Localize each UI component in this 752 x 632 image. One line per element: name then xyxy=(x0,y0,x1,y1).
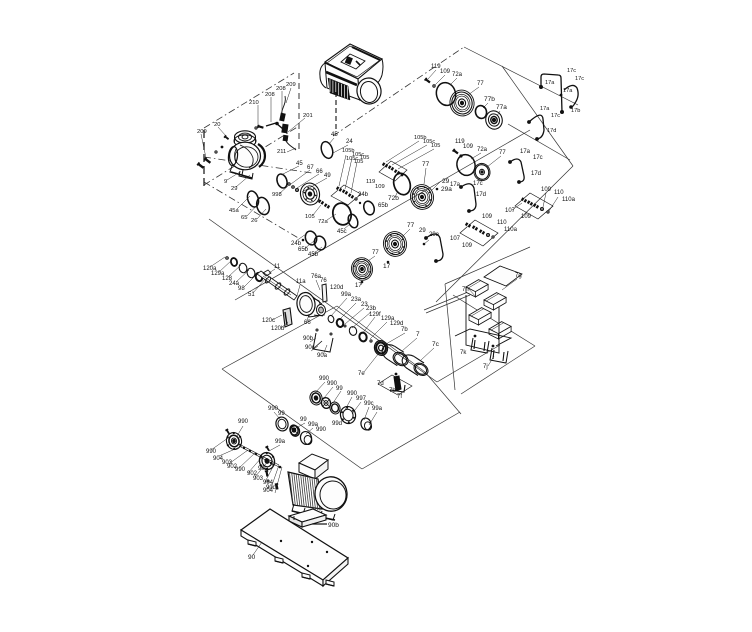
svg-text:9: 9 xyxy=(224,179,227,185)
svg-text:77: 77 xyxy=(422,161,430,168)
svg-text:107: 107 xyxy=(505,208,516,214)
svg-text:17c: 17c xyxy=(575,76,584,82)
svg-text:208: 208 xyxy=(276,86,286,92)
svg-text:107: 107 xyxy=(450,236,461,242)
svg-text:109: 109 xyxy=(462,243,473,249)
svg-text:17d: 17d xyxy=(476,192,486,198)
svg-text:17a: 17a xyxy=(450,182,461,188)
svg-text:51: 51 xyxy=(248,292,255,298)
svg-text:7g: 7g xyxy=(515,273,522,279)
svg-text:72b: 72b xyxy=(388,195,399,202)
svg-text:17a: 17a xyxy=(545,80,555,86)
svg-text:7c: 7c xyxy=(432,341,440,348)
svg-text:45: 45 xyxy=(331,132,338,138)
svg-text:76: 76 xyxy=(320,278,327,284)
svg-text:49: 49 xyxy=(324,173,331,179)
svg-text:77b: 77b xyxy=(484,96,495,103)
svg-text:99: 99 xyxy=(300,417,307,423)
svg-text:17: 17 xyxy=(383,263,391,270)
svg-text:17d: 17d xyxy=(531,171,541,177)
svg-text:17c: 17c xyxy=(551,113,560,119)
svg-text:45a: 45a xyxy=(229,208,239,214)
svg-text:109: 109 xyxy=(440,69,451,75)
svg-text:66: 66 xyxy=(304,320,311,326)
svg-text:99a: 99a xyxy=(275,439,286,445)
svg-text:109: 109 xyxy=(541,187,552,193)
svg-text:66: 66 xyxy=(316,169,323,175)
svg-text:7: 7 xyxy=(416,331,420,338)
svg-text:90b: 90b xyxy=(303,336,314,342)
svg-text:99: 99 xyxy=(336,386,343,392)
svg-text:990: 990 xyxy=(238,419,249,425)
svg-text:99: 99 xyxy=(278,411,285,417)
svg-text:24: 24 xyxy=(346,139,353,145)
svg-text:90c: 90c xyxy=(305,345,315,351)
svg-text:17c: 17c xyxy=(533,155,543,161)
svg-text:72a: 72a xyxy=(477,147,488,153)
svg-text:99d: 99d xyxy=(332,421,342,427)
svg-text:110a: 110a xyxy=(504,227,518,233)
svg-text:7h: 7h xyxy=(462,287,469,293)
svg-text:120c: 120c xyxy=(262,318,275,324)
svg-text:72a: 72a xyxy=(452,72,463,78)
svg-text:45b: 45b xyxy=(308,252,319,258)
svg-text:7j: 7j xyxy=(483,364,488,370)
svg-text:17d: 17d xyxy=(547,128,556,134)
svg-text:109: 109 xyxy=(521,214,532,220)
svg-text:65: 65 xyxy=(241,215,247,221)
svg-text:109: 109 xyxy=(375,184,385,190)
svg-text:119: 119 xyxy=(366,179,375,185)
svg-text:90b: 90b xyxy=(328,522,339,529)
svg-text:77: 77 xyxy=(477,81,484,87)
svg-text:120b: 120b xyxy=(271,326,285,332)
svg-text:17c: 17c xyxy=(567,68,576,74)
svg-text:211: 211 xyxy=(277,149,286,155)
svg-text:110: 110 xyxy=(554,190,564,196)
svg-text:17b: 17b xyxy=(571,108,580,114)
svg-text:90a: 90a xyxy=(317,353,328,359)
svg-text:90a: 90a xyxy=(258,466,269,472)
svg-text:45: 45 xyxy=(296,161,303,167)
svg-text:105: 105 xyxy=(354,159,363,165)
svg-text:105: 105 xyxy=(431,143,440,149)
svg-text:26: 26 xyxy=(251,218,257,224)
svg-text:109: 109 xyxy=(482,214,493,220)
svg-text:209: 209 xyxy=(197,129,207,135)
svg-text:45c: 45c xyxy=(337,229,347,235)
svg-text:201: 201 xyxy=(303,113,313,119)
svg-text:17a: 17a xyxy=(540,106,550,112)
svg-text:77: 77 xyxy=(372,250,379,256)
svg-text:110: 110 xyxy=(497,220,507,226)
svg-text:109: 109 xyxy=(463,144,474,150)
svg-text:990: 990 xyxy=(316,427,327,433)
svg-text:67: 67 xyxy=(307,165,314,171)
svg-text:17a: 17a xyxy=(520,149,531,155)
svg-text:29: 29 xyxy=(442,178,450,185)
svg-text:209: 209 xyxy=(286,82,296,88)
svg-text:110a: 110a xyxy=(562,197,576,203)
svg-text:7b: 7b xyxy=(401,327,408,333)
svg-text:77: 77 xyxy=(407,222,415,229)
svg-text:77a: 77a xyxy=(496,104,507,111)
svg-text:208: 208 xyxy=(265,92,275,98)
svg-text:7k: 7k xyxy=(460,350,467,356)
svg-text:29: 29 xyxy=(419,228,426,234)
svg-text:990: 990 xyxy=(235,467,246,473)
svg-text:72a: 72a xyxy=(318,219,328,225)
svg-text:904: 904 xyxy=(263,488,274,494)
svg-text:20: 20 xyxy=(214,122,220,128)
svg-text:11a: 11a xyxy=(296,279,306,285)
svg-text:17c: 17c xyxy=(473,181,483,187)
svg-text:120d: 120d xyxy=(330,285,343,291)
svg-text:65b: 65b xyxy=(378,203,389,209)
svg-text:77: 77 xyxy=(499,150,506,156)
svg-text:99a: 99a xyxy=(372,406,383,412)
svg-text:210: 210 xyxy=(249,100,259,106)
svg-text:90: 90 xyxy=(248,554,256,561)
